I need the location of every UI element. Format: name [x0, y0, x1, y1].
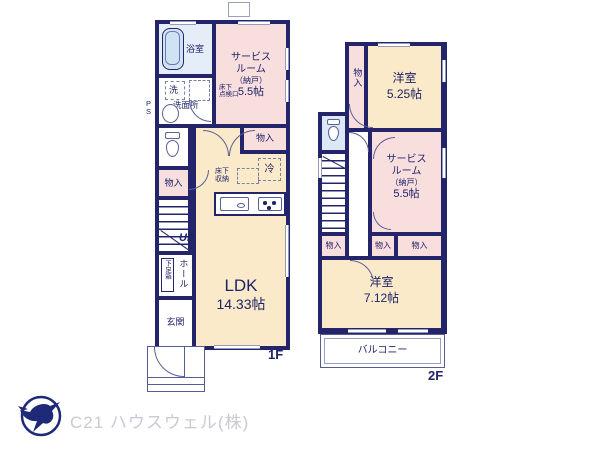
balcony: バルコニー: [320, 334, 445, 368]
window: [442, 148, 446, 178]
service-room-2f-label-2: ルーム: [372, 166, 441, 178]
stairs-2f: [322, 154, 345, 232]
fridge-label: 冷: [259, 164, 280, 176]
storage-left-1f-label: 物入: [159, 178, 188, 188]
ldk-size: 14.33帖: [196, 296, 286, 312]
window: [348, 329, 386, 333]
storage-mid-2f-label: 物入: [372, 241, 394, 250]
western-room-525-name: 洋室: [368, 72, 441, 86]
floor1-label: 1F: [268, 347, 283, 362]
service-room-2f-label-4: 5.5帖: [372, 188, 441, 201]
window: [378, 43, 410, 47]
western-room-712-name: 洋室: [322, 276, 441, 290]
western-room-525: 洋室 5.25帖: [368, 46, 441, 128]
storage-right-2f: 物入: [398, 236, 441, 256]
western-room-712: 洋室 7.12帖: [322, 260, 441, 328]
service-room-1f: サービス ルーム （納戸） 5.5帖: [216, 24, 286, 124]
service-room-1f-label-1: サービス: [216, 52, 286, 64]
fridge-space: 冷: [258, 158, 281, 181]
western-room-712-size: 7.12帖: [322, 292, 441, 306]
toilet-icon-1f: [165, 132, 180, 139]
balcony-label: バルコニー: [321, 345, 444, 357]
window: [214, 345, 260, 349]
bathroom: 浴室: [159, 24, 212, 74]
floor2-plan: 物入 洋室 5.25帖 DN サービス ルーム （納戸） 5.5帖 物入 物入 …: [318, 42, 447, 334]
window: [170, 21, 196, 25]
plan-notch: [318, 42, 345, 112]
storage-right-2f-label: 物入: [398, 241, 441, 250]
service-room-1f-label-2: ルーム: [216, 64, 286, 76]
window: [285, 80, 289, 102]
kitchen-sink-icon: [220, 197, 249, 211]
underfloor-storage-box: [237, 168, 259, 184]
floor2-label: 2F: [428, 368, 443, 383]
stove-icon: [258, 197, 282, 211]
hall-label: ホール: [178, 259, 188, 289]
company-logo: [16, 392, 64, 440]
ps-label: P S: [146, 100, 151, 115]
porch-door-arc: [154, 347, 184, 377]
storage-left-2f: 物入: [322, 236, 345, 256]
vanity-space: [189, 80, 210, 101]
eave-outline: [228, 2, 250, 17]
bathtub-icon: [162, 28, 184, 70]
service-room-2f-label-3: （納戸）: [372, 178, 441, 187]
underfloor-hatch-label: 床下 点検口: [219, 84, 239, 99]
floorplan-page: { "floor1": { "floor_label": "1F", "bath…: [0, 0, 600, 450]
window: [238, 21, 270, 25]
window: [285, 48, 289, 70]
toilet-icon-2f: [327, 119, 340, 125]
storage-left-2f-label: 物入: [322, 241, 345, 250]
storage-mid-2f: 物入: [372, 236, 394, 256]
company-name: C21 ハウスウェル(株): [70, 408, 249, 433]
entrance-label: 玄関: [159, 317, 192, 327]
storage-left-1f: 物入: [159, 170, 188, 196]
bird-logo-icon: [16, 392, 64, 440]
entrance-genkan: 玄関: [159, 300, 192, 346]
toilet-1f: [159, 128, 188, 166]
kitchen-counter: [214, 192, 286, 216]
toilet-2f: [322, 116, 345, 150]
window: [318, 158, 322, 178]
window: [442, 60, 446, 82]
shoe-box: 下足箱: [161, 258, 174, 292]
western-room-525-size: 5.25帖: [368, 88, 441, 102]
window: [285, 225, 289, 277]
underfloor-storage-label: 床下 収納: [215, 168, 229, 184]
storage-top-2f-label: 物入: [352, 68, 362, 88]
sink-icon: [162, 104, 179, 123]
window: [398, 329, 428, 333]
up-label: UP: [179, 232, 194, 245]
washer-label: 洗: [169, 85, 178, 95]
hall-1f: 下足箱 ホール: [159, 255, 192, 296]
entrance-porch: [147, 346, 205, 392]
bathroom-label: 浴室: [186, 44, 204, 54]
floor1-plan: 浴室 サービス ルーム （納戸） 5.5帖 洗 洗面所 物入 UP 下足箱 ホー…: [155, 20, 290, 350]
ldk-name: LDK: [196, 276, 286, 296]
shoe-box-label: 下足箱: [163, 260, 170, 280]
